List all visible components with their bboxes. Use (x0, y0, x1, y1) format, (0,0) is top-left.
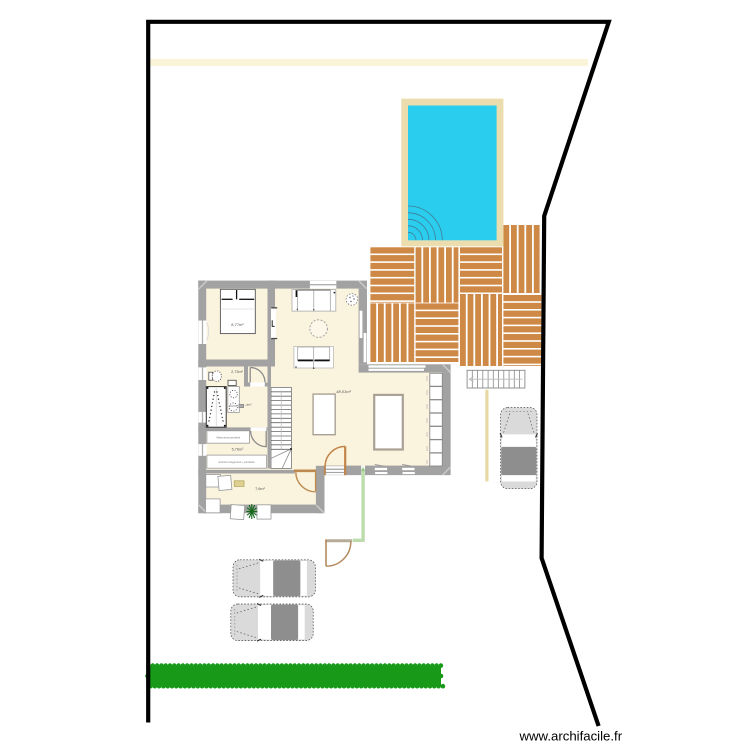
svg-text:www.archifacile.fr: www.archifacile.fr (519, 729, 623, 744)
svg-text:armoire rangement + penderie: armoire rangement + penderie (218, 460, 255, 464)
svg-text:48,01m²: 48,01m² (336, 389, 351, 394)
svg-text:2,73m²: 2,73m² (231, 370, 244, 374)
svg-text:5,76m²: 5,76m² (232, 448, 245, 452)
svg-text:8,77m²: 8,77m² (231, 322, 244, 327)
svg-text:Vêtements penderie: Vêtements penderie (216, 436, 241, 440)
svg-text:7,6m²: 7,6m² (255, 487, 265, 491)
